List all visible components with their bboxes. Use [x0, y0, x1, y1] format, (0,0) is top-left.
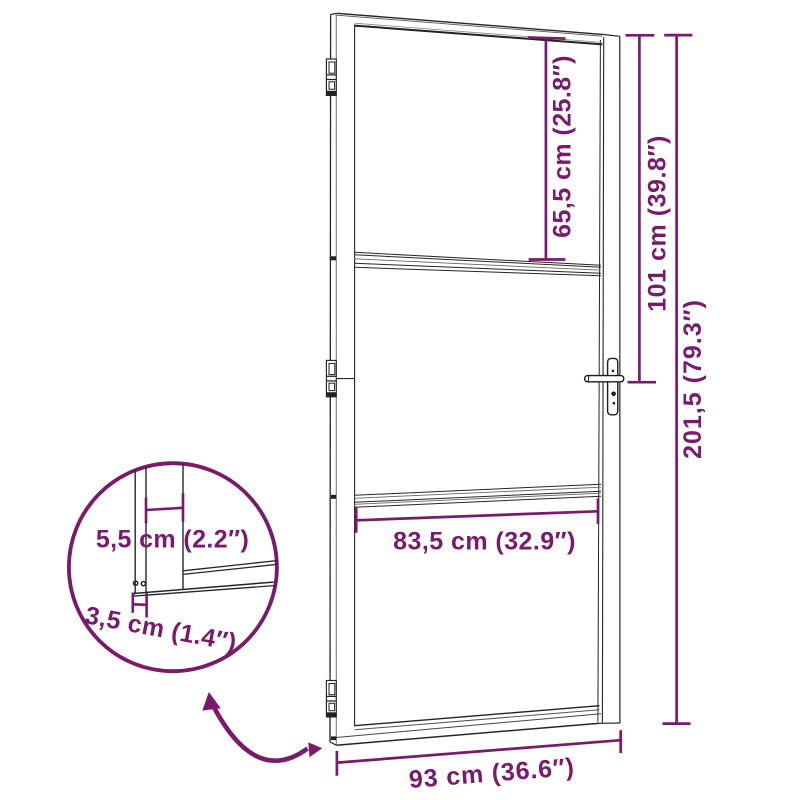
- svg-text:201,5 (79.3″): 201,5 (79.3″): [679, 299, 707, 459]
- svg-text:65,5 cm (25.8″): 65,5 cm (25.8″): [548, 55, 576, 238]
- svg-text:5,5 cm (2.2″): 5,5 cm (2.2″): [96, 525, 249, 553]
- svg-text:101 cm (39.8″): 101 cm (39.8″): [644, 135, 672, 312]
- svg-text:83,5 cm (32.9″): 83,5 cm (32.9″): [393, 528, 576, 556]
